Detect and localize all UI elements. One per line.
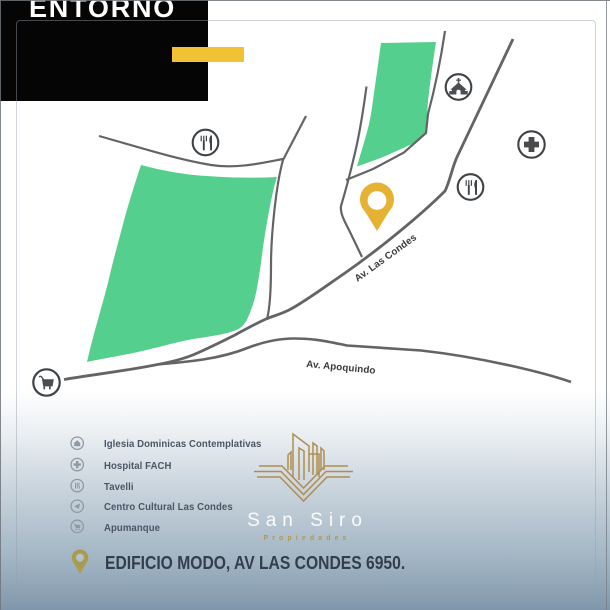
svg-text:Propiedades: Propiedades <box>263 535 350 542</box>
svg-text:San Siro: San Siro <box>247 510 368 531</box>
